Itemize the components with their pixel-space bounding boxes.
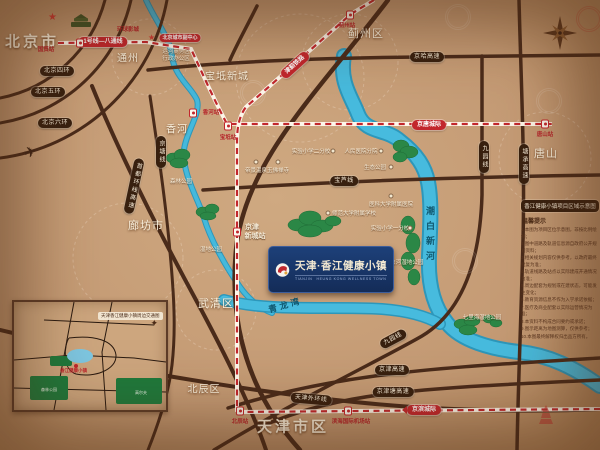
poi-icon-ecopark (389, 165, 394, 170)
station-label-tangshan: 唐山站 (537, 130, 554, 138)
rail-capsule-jingbin: 京滨城际 (407, 405, 441, 415)
inset-map: 天津香江健康小镇周边交通图 香江健康小镇 森林公园 高尔夫 ✦ (12, 300, 168, 412)
project-name-en2: HEUNG KONG WELLNESS TOWN (316, 277, 386, 281)
station-label-beichen: 北辰站 (232, 417, 249, 425)
rail-capsule-jingtang: 京唐城际 (412, 120, 446, 130)
star-icon: ★ (48, 12, 57, 23)
inset-park-label: 森林公园 (41, 387, 57, 393)
rail-capsule-line1: 1号线—八通线 (78, 37, 127, 47)
city-label-tongzhou: 通州 (117, 50, 139, 65)
inset-golf-label: 高尔夫 (135, 390, 147, 396)
poi-icon-hotspring (254, 160, 259, 165)
watermark-ring (536, 88, 562, 114)
city-label-wuqing: 武清区 (198, 295, 234, 311)
poi-label-normal-univ: 师范大学附属学校 (332, 209, 376, 217)
road-banner-5ring: 北京五环 (31, 87, 65, 97)
panel-note: 5.周边配套为规划或在建状态，可能发生变化； (521, 283, 599, 296)
park-label-forest: 森林公园 (170, 177, 192, 185)
city-label-tianjin: 天津市区 (257, 416, 329, 437)
project-name-en1: TIANJIN (295, 277, 312, 281)
watermark-ring (240, 80, 266, 106)
station-label-jingjin2: 新城站 (245, 231, 266, 241)
city-label-tangshan: 唐山 (534, 145, 558, 161)
road-banner-jingtang-line: 京塘线 (156, 136, 166, 168)
panel-note: 9.图示距离为地图测算，仅供参考； (521, 326, 599, 333)
station-icon-xianghe (189, 109, 197, 118)
watermark-ring (445, 4, 471, 30)
watermark-ring-red (576, 6, 600, 32)
road-banner-jiuyuan: 九园线 (479, 141, 489, 173)
city-label-baodi: 宝坻新城 (205, 68, 249, 83)
city-label-beichen: 北辰区 (188, 381, 221, 396)
project-logo-text: 天津·香江健康小镇 TIANJIN HEUNG KONG WELLNESS TO… (295, 258, 387, 282)
project-name-en: TIANJIN HEUNG KONG WELLNESS TOWN (295, 275, 387, 282)
poi-icon-hospital (379, 149, 384, 154)
station-icon-baodi (224, 122, 232, 131)
poi-label-ecopark: 生态公园 (364, 163, 386, 171)
panel-note: 3.相关规划内容仅供参考，以政府最终批复为准； (521, 255, 599, 268)
road-banner-jingjintang: 京津塘高速 (373, 387, 414, 397)
location-map: 北京市 通州 香河 蓟州区 宝坻新城 廊坊市 武清区 北辰区 天津市区 唐山 ★… (0, 0, 600, 450)
project-logo-card: 天津·香江健康小镇 TIANJIN HEUNG KONG WELLNESS TO… (268, 246, 394, 293)
city-label-xianghe: 香河 (166, 121, 188, 136)
subcenter-star-icon: ★ (148, 33, 155, 42)
park-label-wetland: 湿地公园 (200, 245, 222, 253)
notes-panel: 香江健康小镇项目区域示意图 温馨提示 1.本图为项目区位示意图，非按比例绘制； … (521, 200, 599, 341)
poi-label-temple: 玉佛禅寺 (267, 166, 289, 174)
station-icon-beichen (236, 407, 244, 416)
station-label-jizhou: 蓟州站 (339, 21, 356, 29)
project-name-zh: 天津·香江健康小镇 (295, 258, 387, 273)
panel-tip-heading: 温馨提示 (522, 216, 599, 225)
poi-label-school2: 实验小学二分校 (292, 147, 331, 155)
panel-note: 2.图中道路及轨道信息源自政府公开规划资料； (521, 241, 599, 254)
river-label-chaobaixinhe: 潮白新河 (424, 206, 437, 266)
station-icon-guomao (76, 39, 84, 48)
poi-label-hotspring: 帝景温泉 (245, 166, 267, 174)
road-banner-4ring: 北京四环 (40, 66, 74, 76)
station-label-xianghe: 香河站 (203, 108, 220, 116)
station-icon-tangshan (541, 120, 549, 129)
station-icon-jizhou (346, 11, 354, 20)
poi-label-hospital: 人民医院分院 (344, 147, 377, 155)
project-logo-icon (275, 260, 290, 280)
panel-note: 4.轨道线路及站点以实际建成开通情况为准； (521, 269, 599, 282)
poi-icon-normal-univ (326, 211, 331, 216)
panel-note: 10.本图最终解释权归出品方所有。 (521, 334, 599, 341)
poi-icon-school2 (331, 149, 336, 154)
poi-icon-medical-univ (389, 194, 394, 199)
poi-icon-temple (276, 160, 281, 165)
inset-compass-icon: ✦ (150, 318, 158, 329)
panel-note: 7.医疗及商业配套以实际运营情况为准； (521, 305, 599, 318)
road-banner-6ring: 北京六环 (38, 118, 72, 128)
station-label-baodi: 宝坻站 (220, 133, 237, 141)
panel-title: 香江健康小镇项目区域示意图 (521, 200, 599, 212)
poi-label-school1: 实验小学一分校 (371, 224, 410, 232)
poi-label-medical-univ: 医科大学附属医院 (369, 200, 413, 208)
admin-office-label: 行政办公区 (162, 54, 190, 62)
panel-note: 6.教育资源信息不作为入学承诺依据； (521, 297, 599, 304)
subcenter-label: 北京城市副中心 (159, 34, 200, 42)
road-banner-jingjin: 京津高速 (375, 365, 409, 375)
station-label-guomao: 国贸站 (38, 45, 55, 53)
road-banner-baolu: 宝芦线 (330, 176, 358, 186)
panel-note: 1.本图为项目区位示意图，非按比例绘制； (521, 227, 599, 240)
station-label-airport: 滨海国际机场站 (332, 417, 371, 425)
road-banner-jingha: 京哈高速 (410, 52, 444, 62)
park-label-qilihai: 七里海湿地公园 (463, 313, 502, 321)
poi-icon-school1 (408, 226, 413, 231)
station-icon-jingjin-newtown (233, 228, 241, 237)
panel-note: 8.本资料不构成合同要约或承诺； (521, 319, 599, 326)
compass-icon (543, 16, 577, 50)
inset-project-marker: 香江健康小镇 (60, 368, 87, 374)
watermark-ring (452, 248, 478, 274)
station-icon-airport (344, 407, 352, 416)
city-label-langfang: 廊坊市 (128, 217, 164, 233)
tiananmen-icon (71, 14, 91, 27)
station-label-universal: 环球影城 (117, 25, 139, 33)
road-banner-tangcheng: 塘承高速 (519, 144, 529, 184)
